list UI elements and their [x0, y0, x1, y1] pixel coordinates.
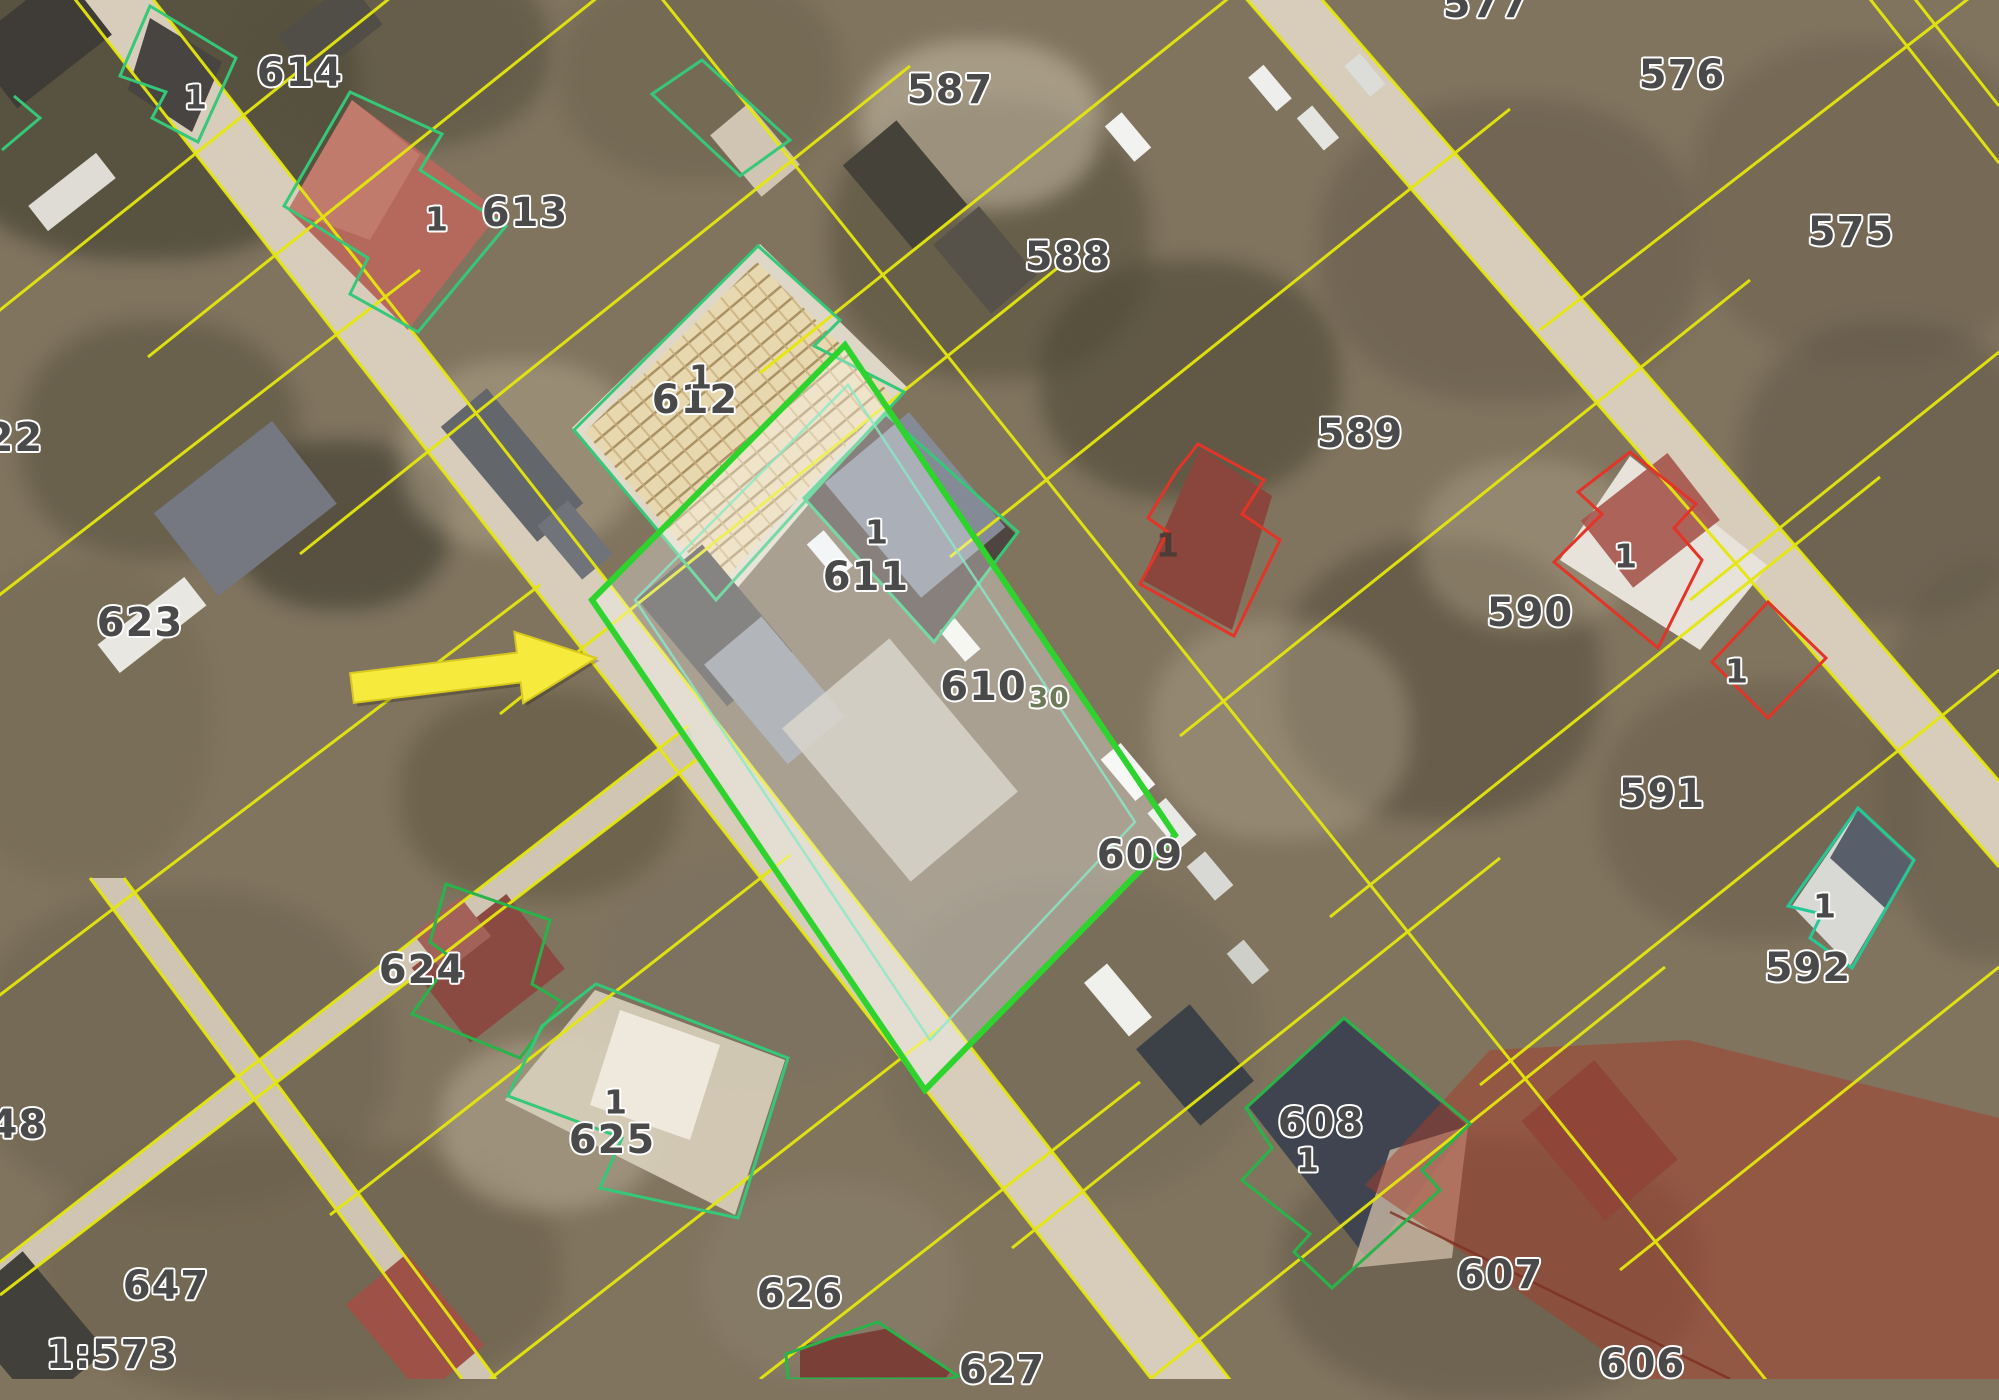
- pointer-arrow: [348, 622, 604, 727]
- parcel-label-608: 608: [1278, 1100, 1365, 1146]
- parcel-610-sub-number: 30: [1029, 681, 1070, 714]
- parcel-label-611: 611: [823, 554, 910, 600]
- building-number-613: 1: [425, 200, 449, 239]
- cadastral-map-viewport[interactable]: { "scale_text": "1:573", "highlight": { …: [0, 0, 1999, 1379]
- building-number-612: 1: [689, 358, 713, 397]
- parcel-label-588: 588: [1025, 234, 1112, 280]
- parcel-label-576: 576: [1639, 52, 1726, 98]
- parcel-label-625: 625: [569, 1117, 656, 1163]
- parcel-label-607: 607: [1457, 1252, 1544, 1298]
- parcel-label-614: 614: [257, 50, 344, 96]
- parcel-label-623: 623: [97, 600, 184, 646]
- parcel-label-587: 587: [907, 67, 994, 113]
- building-number-625: 1: [604, 1083, 628, 1122]
- map-scale-text: 1:573: [46, 1332, 178, 1378]
- building-number-614: 1: [184, 78, 208, 117]
- parcel-label-626: 626: [757, 1271, 844, 1317]
- parcel-label-647: 647: [123, 1263, 210, 1309]
- parcel-label-591: 591: [1619, 771, 1706, 817]
- building-number-608: 1: [1296, 1141, 1320, 1180]
- parcel-label-589: 589: [1317, 411, 1404, 457]
- parcel-label-575: 575: [1808, 209, 1895, 255]
- parcel-610-number: 610: [940, 664, 1027, 710]
- parcel-607-restriction-overlay: [1365, 1040, 1999, 1379]
- parcel-label-610: 61030: [940, 664, 1067, 710]
- parcel-label-609: 609: [1097, 832, 1184, 878]
- building-number-611: 1: [865, 513, 889, 552]
- building-number-589: 1: [1156, 526, 1180, 565]
- parcel-label-622: 622: [0, 415, 43, 461]
- building-number-592: 1: [1813, 887, 1837, 926]
- parcel-label-624: 624: [379, 947, 466, 993]
- building-number-590: 1: [1614, 537, 1638, 576]
- parcel-label-592: 592: [1765, 945, 1852, 991]
- parcel-label-613: 613: [482, 190, 569, 236]
- parcel-label-577: 577: [1443, 0, 1530, 27]
- building-number-590b: 1: [1725, 652, 1749, 691]
- parcel-label-590: 590: [1487, 590, 1574, 636]
- parcel-label-606: 606: [1599, 1341, 1686, 1387]
- parcel-label-627: 627: [959, 1347, 1046, 1393]
- parcel-label-648: 648: [0, 1102, 47, 1148]
